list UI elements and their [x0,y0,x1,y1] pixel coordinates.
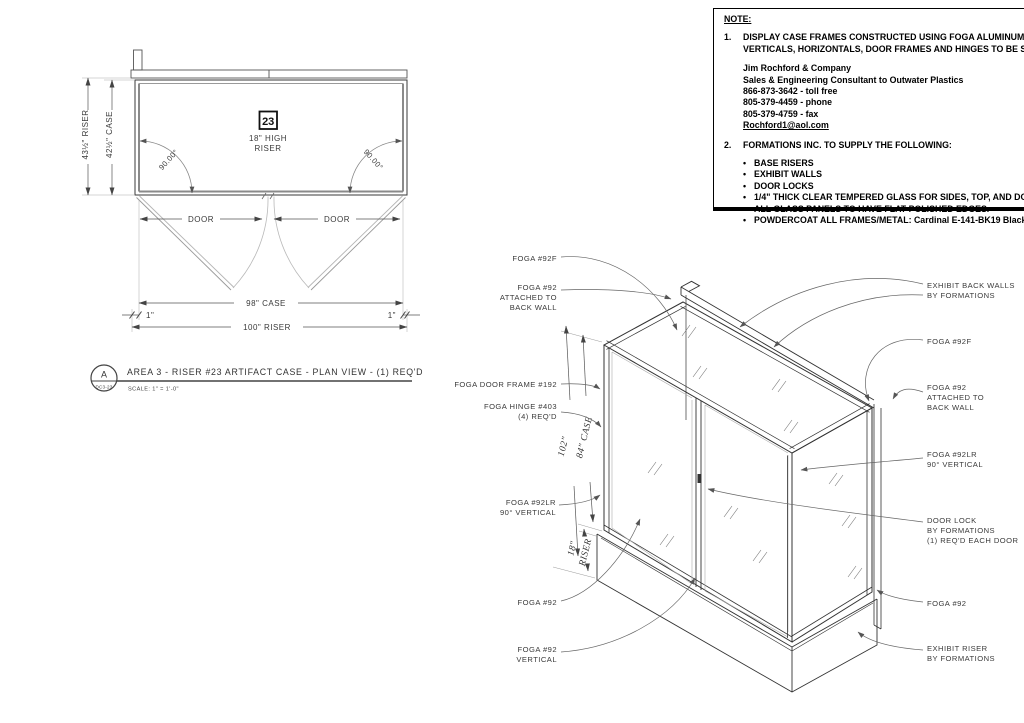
contact-role: Sales & Engineering Consultant to Outwat… [743,75,1024,86]
door-right-label: DOOR [324,215,350,224]
label-exhibit-back-walls-2: BY FORMATIONS [927,291,995,300]
label-foga-door-frame: FOGA DOOR FRAME #192 [454,380,557,389]
iso-back-wall [681,281,881,629]
plan-view: 23 18" HIGH RISER 90.00° 90.00° DOOR [81,50,420,332]
supply-item: •POWDERCOAT ALL FRAMES/METAL: Cardinal E… [743,215,1024,226]
riser-height-label-1: 18" HIGH [249,134,287,143]
label-foga-92-attached-right-3: BACK WALL [927,403,974,412]
label-foga-92-attached-right-2: ATTACHED TO [927,393,984,402]
label-foga-92-right: FOGA #92 [927,599,966,608]
plan-bottom-dims: 98" CASE 1" 1" 100" RISER [122,200,420,332]
contact-block: Jim Rochford & Company Sales & Engineeri… [743,63,1024,131]
label-foga-92lr-left-2: 90° VERTICAL [500,508,556,517]
note-heading: NOTE: [724,14,1024,25]
supply-item-text: POWDERCOAT ALL FRAMES/METAL: Cardinal E-… [754,215,1024,226]
label-foga-92lr-left-1: FOGA #92LR [506,498,556,507]
label-exhibit-back-walls-1: EXHIBIT BACK WALLS [927,281,1015,290]
iso-riser [597,534,877,692]
label-door-lock-2: BY FORMATIONS [927,526,995,535]
note-item-2-text: FORMATIONS INC. TO SUPPLY THE FOLLOWING: [743,140,952,151]
supply-item-continuation: ALL GLASS PANELS TO HAVE FLAT POLISHED E… [743,204,1024,215]
iso-right-face [788,408,873,642]
bullet-icon: • [743,181,754,192]
supply-list: •BASE RISERS •EXHIBIT WALLS •DOOR LOCKS … [743,158,1024,226]
dim-1in-right: 1" [388,311,396,320]
label-foga-92f-right: FOGA #92F [927,337,972,346]
contact-name: Jim Rochford & Company [743,63,1024,74]
dim-43-riser: 43½" RISER [81,109,90,159]
label-door-lock-3: (1) REQ'D EACH DOOR [927,536,1018,545]
iso-labels-right: EXHIBIT BACK WALLS BY FORMATIONS FOGA #9… [927,281,1018,663]
contact-phone: 805-379-4459 - phone [743,97,1024,108]
label-foga-92-attached-right-1: FOGA #92 [927,383,966,392]
plan-tag-23: 23 18" HIGH RISER [249,112,287,154]
supply-item-text: EXHIBIT WALLS [754,169,822,180]
label-foga-92-left: FOGA #92 [518,598,557,607]
iso-dim-102: 102" [557,435,572,458]
supply-item-text: DOOR LOCKS [754,181,814,192]
angle-left-label: 90.00° [157,147,180,171]
supply-item-text: 1/4" THICK CLEAR TEMPERED GLASS FOR SIDE… [754,192,1024,203]
plan-left-dims: 43½" RISER 42½" CASE [81,78,135,195]
iso-labels-left: FOGA #92F FOGA #92 ATTACHED TO BACK WALL… [454,254,557,664]
view-title: AREA 3 - RISER #23 ARTIFACT CASE - PLAN … [127,367,423,377]
tag-number: 23 [262,116,274,128]
label-foga-92lr-right-1: FOGA #92LR [927,450,977,459]
supply-item: •BASE RISERS [743,158,1024,169]
label-foga-92-attached-left-2: ATTACHED TO [500,293,557,302]
label-exhibit-riser-2: BY FORMATIONS [927,654,995,663]
note-box: NOTE: 1. DISPLAY CASE FRAMES CONSTRUCTED… [713,8,1024,211]
bullet-icon: • [743,192,754,203]
drawing-sheet: { "note": { "heading": "NOTE:", "bullet"… [0,0,1024,723]
view-scale: SCALE: 1" = 1'-0" [128,387,179,393]
label-foga-92lr-right-2: 90° VERTICAL [927,460,983,469]
contact-email-link[interactable]: Rochford1@aol.com [743,120,829,130]
detail-number: DC3-23 [95,385,112,390]
plan-back-wall [131,50,407,78]
supply-item-text: BASE RISERS [754,158,814,169]
label-exhibit-riser-1: EXHIBIT RISER [927,644,988,653]
supply-item: •1/4" THICK CLEAR TEMPERED GLASS FOR SID… [743,192,1024,203]
door-lock [698,474,702,483]
label-foga-92-attached-left-1: FOGA #92 [518,283,557,292]
supply-item-text: ALL GLASS PANELS TO HAVE FLAT POLISHED E… [754,204,989,215]
contact-tollfree: 866-873-3642 - toll free [743,86,1024,97]
contact-fax: 805-379-4759 - fax [743,109,1024,120]
iso-dims: 102" 84" CASE 18" RISER [553,326,602,578]
supply-item: •EXHIBIT WALLS [743,169,1024,180]
label-foga-92-attached-left-3: BACK WALL [510,303,557,312]
dim-100-riser: 100" RISER [243,323,291,332]
dim-98-case: 98" CASE [246,299,286,308]
bullet-icon: • [743,158,754,169]
glass-hatch-marks [648,325,862,579]
title-block: A DC3-23 AREA 3 - RISER #23 ARTIFACT CAS… [91,365,423,393]
riser-height-label-2: RISER [255,144,282,153]
iso-dim-18b: RISER [578,538,595,568]
note-item-1: 1. DISPLAY CASE FRAMES CONSTRUCTED USING… [724,32,1024,55]
label-foga-92f-left: FOGA #92F [512,254,557,263]
label-door-lock-1: DOOR LOCK [927,516,977,525]
note-item-2-number: 2. [724,140,743,151]
dim-1in-left: 1" [146,311,154,320]
plan-doors [137,193,406,290]
bullet-icon: • [743,169,754,180]
note-item-1-line-1: DISPLAY CASE FRAMES CONSTRUCTED USING FO… [743,32,1024,43]
iso-dim-84: 84" CASE [575,416,595,460]
note-item-2: 2. FORMATIONS INC. TO SUPPLY THE FOLLOWI… [724,140,1024,151]
detail-letter: A [101,370,107,380]
note-item-1-line-2: VERTICALS, HORIZONTALS, DOOR FRAMES AND … [743,44,1024,55]
label-foga-hinge-2: (4) REQ'D [518,412,557,421]
dim-42-case: 42½" CASE [105,111,114,158]
iso-front-face [604,345,792,642]
plan-door-dims: DOOR DOOR [140,214,400,225]
iso-leaders [559,257,923,652]
label-foga-hinge-1: FOGA HINGE #403 [484,402,557,411]
supply-item: •DOOR LOCKS [743,181,1024,192]
label-foga-92-vertical-1: FOGA #92 [518,645,557,654]
note-item-1-number: 1. [724,32,743,55]
bullet-icon: • [743,215,754,226]
iso-view: 102" 84" CASE 18" RISER [454,254,1018,692]
door-left-label: DOOR [188,215,214,224]
label-foga-92-vertical-2: VERTICAL [516,655,557,664]
angle-right-label: 90.00° [362,147,385,171]
